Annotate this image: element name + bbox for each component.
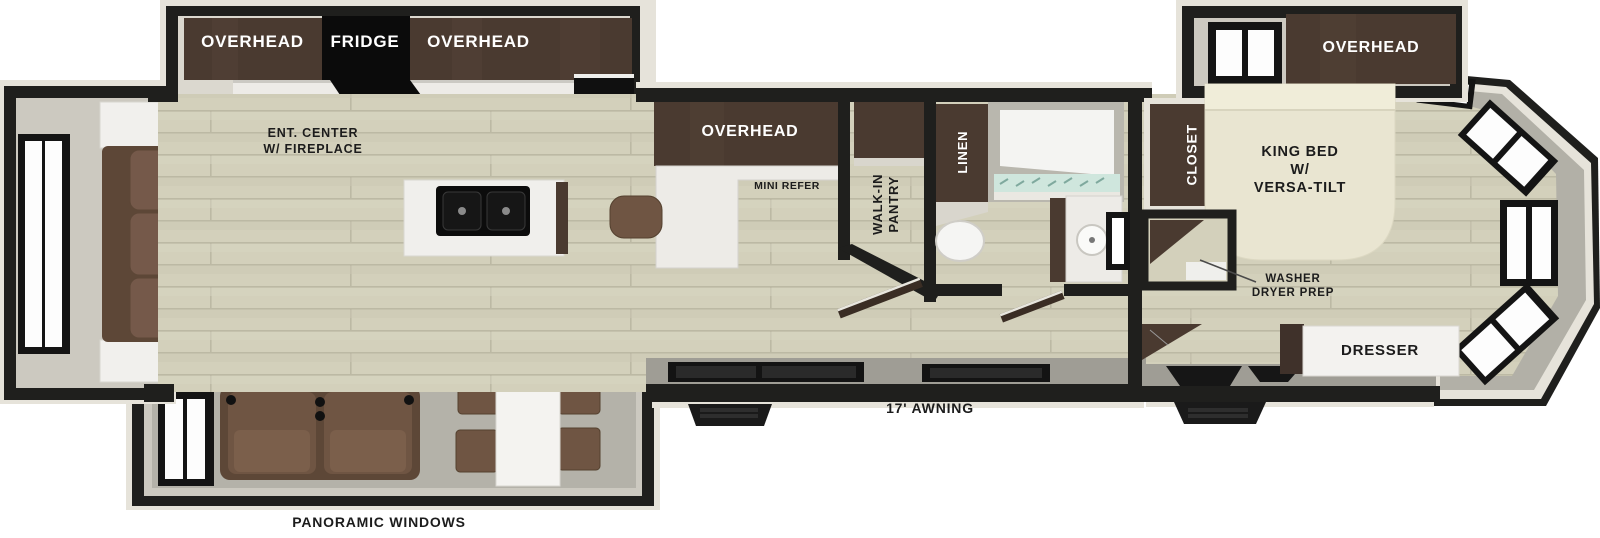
label-king-bed: KING BED W/ VERSA-TILT [1218,143,1382,197]
counter-chair [610,196,662,238]
theater-seating [220,386,420,480]
kitchen-island [404,180,568,256]
slideout-window [158,392,214,486]
bed-pillows [1205,84,1395,110]
entry-steps-bedroom [1174,402,1266,424]
label-awning: 17' AWNING [830,400,1030,418]
label-ent-center: ENT. CENTER W/ FIREPLACE [228,126,398,157]
floorplan-canvas: OVERHEAD FRIDGE OVERHEAD ENT. CENTER W/ … [0,0,1600,538]
cap-window-front [1500,200,1558,286]
label-overhead-rear-right: OVERHEAD [406,31,551,52]
label-mini-refer: MINI REFER [736,180,838,193]
shower [988,102,1124,202]
label-walk-in-pantry: WALK-IN PANTRY [870,140,903,268]
bathroom-window [1106,212,1130,270]
label-panoramic-windows: PANORAMIC WINDOWS [257,514,501,532]
entry-steps-kitchen [688,404,772,426]
bedroom-slide-window [1208,22,1282,84]
floorplan-drawing [0,0,1600,538]
label-overhead-rear-left: OVERHEAD [180,31,325,52]
label-closet: CLOSET [1183,110,1201,200]
label-dresser: DRESSER [1309,342,1451,361]
label-overhead-kitchen: OVERHEAD [674,122,826,142]
label-linen: LINEN [955,111,971,193]
label-washer-dryer-prep: WASHER DRYER PREP [1222,272,1364,301]
label-overhead-bedroom: OVERHEAD [1296,38,1446,58]
washer-dryer-closet [1144,214,1232,286]
label-fridge: FRIDGE [322,31,408,52]
rear-window [18,134,70,354]
toilet [936,221,984,261]
